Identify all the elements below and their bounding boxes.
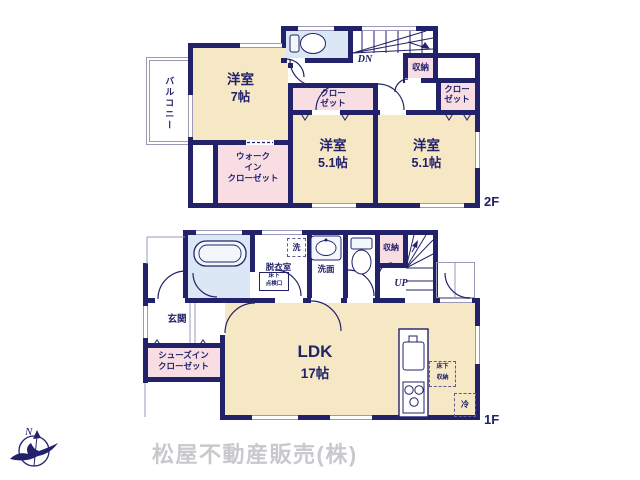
door-opening bbox=[287, 58, 305, 63]
room-size: 5.1帖 bbox=[318, 156, 348, 170]
underfloor-storage: 床下 収納 bbox=[429, 361, 456, 387]
closet-left-label: クロー ゼット bbox=[293, 88, 373, 108]
dressing-room-label: 脱衣室 bbox=[252, 262, 305, 273]
window bbox=[252, 415, 298, 420]
room-name: 洋室 bbox=[413, 138, 440, 153]
storage2f-label: 収納 bbox=[403, 62, 438, 73]
laundry-space: 洗 bbox=[287, 238, 306, 257]
stairs-down-label: DN bbox=[350, 54, 380, 67]
compass: N bbox=[10, 426, 58, 466]
door-opening bbox=[312, 110, 340, 115]
room-size: 5.1帖 bbox=[412, 156, 442, 170]
floor2-label: 2F bbox=[484, 194, 499, 209]
window bbox=[362, 26, 416, 31]
floorplan-page: バルコニー 洋室7帖 洋室5.1帖 洋室5.1帖 クロー ゼット クロー ゼット… bbox=[0, 0, 640, 480]
window bbox=[475, 132, 480, 168]
wall bbox=[375, 263, 408, 268]
window bbox=[312, 203, 356, 208]
refrigerator-space: 冷 bbox=[454, 393, 476, 417]
wall bbox=[143, 377, 220, 382]
bathroom-floor bbox=[188, 235, 250, 298]
window bbox=[420, 203, 464, 208]
door-opening bbox=[347, 298, 373, 303]
wall bbox=[433, 53, 480, 58]
window bbox=[262, 230, 302, 235]
window bbox=[475, 326, 480, 364]
room-size: 7帖 bbox=[231, 90, 250, 104]
underfloor-hatch: 床下 点検口 bbox=[259, 272, 289, 291]
window bbox=[196, 230, 242, 235]
room-name: 洋室 bbox=[227, 72, 254, 87]
shoes-closet-label: シューズイン クローゼット bbox=[145, 350, 222, 373]
bedroom51a-label: 洋室5.1帖 bbox=[293, 138, 373, 172]
room-name: LDK bbox=[298, 342, 333, 361]
stairs-up-label: UP bbox=[388, 278, 414, 291]
door-opening bbox=[246, 140, 274, 145]
closet-right-label: クロー ゼット bbox=[438, 84, 476, 104]
bedroom7-label: 洋室7帖 bbox=[193, 72, 288, 106]
door-opening bbox=[405, 78, 421, 83]
porch-right bbox=[436, 262, 475, 298]
room-size: 17帖 bbox=[301, 366, 330, 381]
wall bbox=[188, 140, 293, 145]
toilet2f-floor bbox=[286, 31, 348, 58]
door-opening bbox=[220, 303, 225, 335]
wall bbox=[143, 343, 220, 348]
door-opening bbox=[250, 272, 255, 298]
door-opening bbox=[155, 298, 185, 303]
window bbox=[240, 43, 282, 48]
walkin-closet-label: ウォーク イン クローゼット bbox=[218, 151, 288, 184]
compass-north-label: N bbox=[24, 426, 33, 438]
ldk-label: LDK17帖 bbox=[270, 341, 360, 384]
wall bbox=[403, 53, 438, 58]
door-opening bbox=[380, 110, 406, 115]
washroom-label: 洗面 bbox=[308, 264, 344, 275]
room-name: 洋室 bbox=[320, 138, 347, 153]
window bbox=[298, 26, 334, 31]
company-name: 松屋不動産販売(株) bbox=[152, 437, 358, 469]
entrance-label: 玄関 bbox=[147, 314, 207, 326]
floor1-label: 1F bbox=[484, 412, 499, 427]
window bbox=[440, 298, 472, 303]
balcony-label: バルコニー bbox=[163, 76, 174, 131]
door-opening bbox=[275, 298, 303, 303]
door-opening bbox=[311, 298, 341, 303]
window bbox=[330, 415, 372, 420]
storage1f-label: 収納 bbox=[377, 243, 405, 253]
compass-bird bbox=[10, 443, 58, 460]
bedroom51b-label: 洋室5.1帖 bbox=[378, 138, 475, 172]
wall bbox=[183, 230, 188, 303]
wall bbox=[475, 53, 480, 208]
